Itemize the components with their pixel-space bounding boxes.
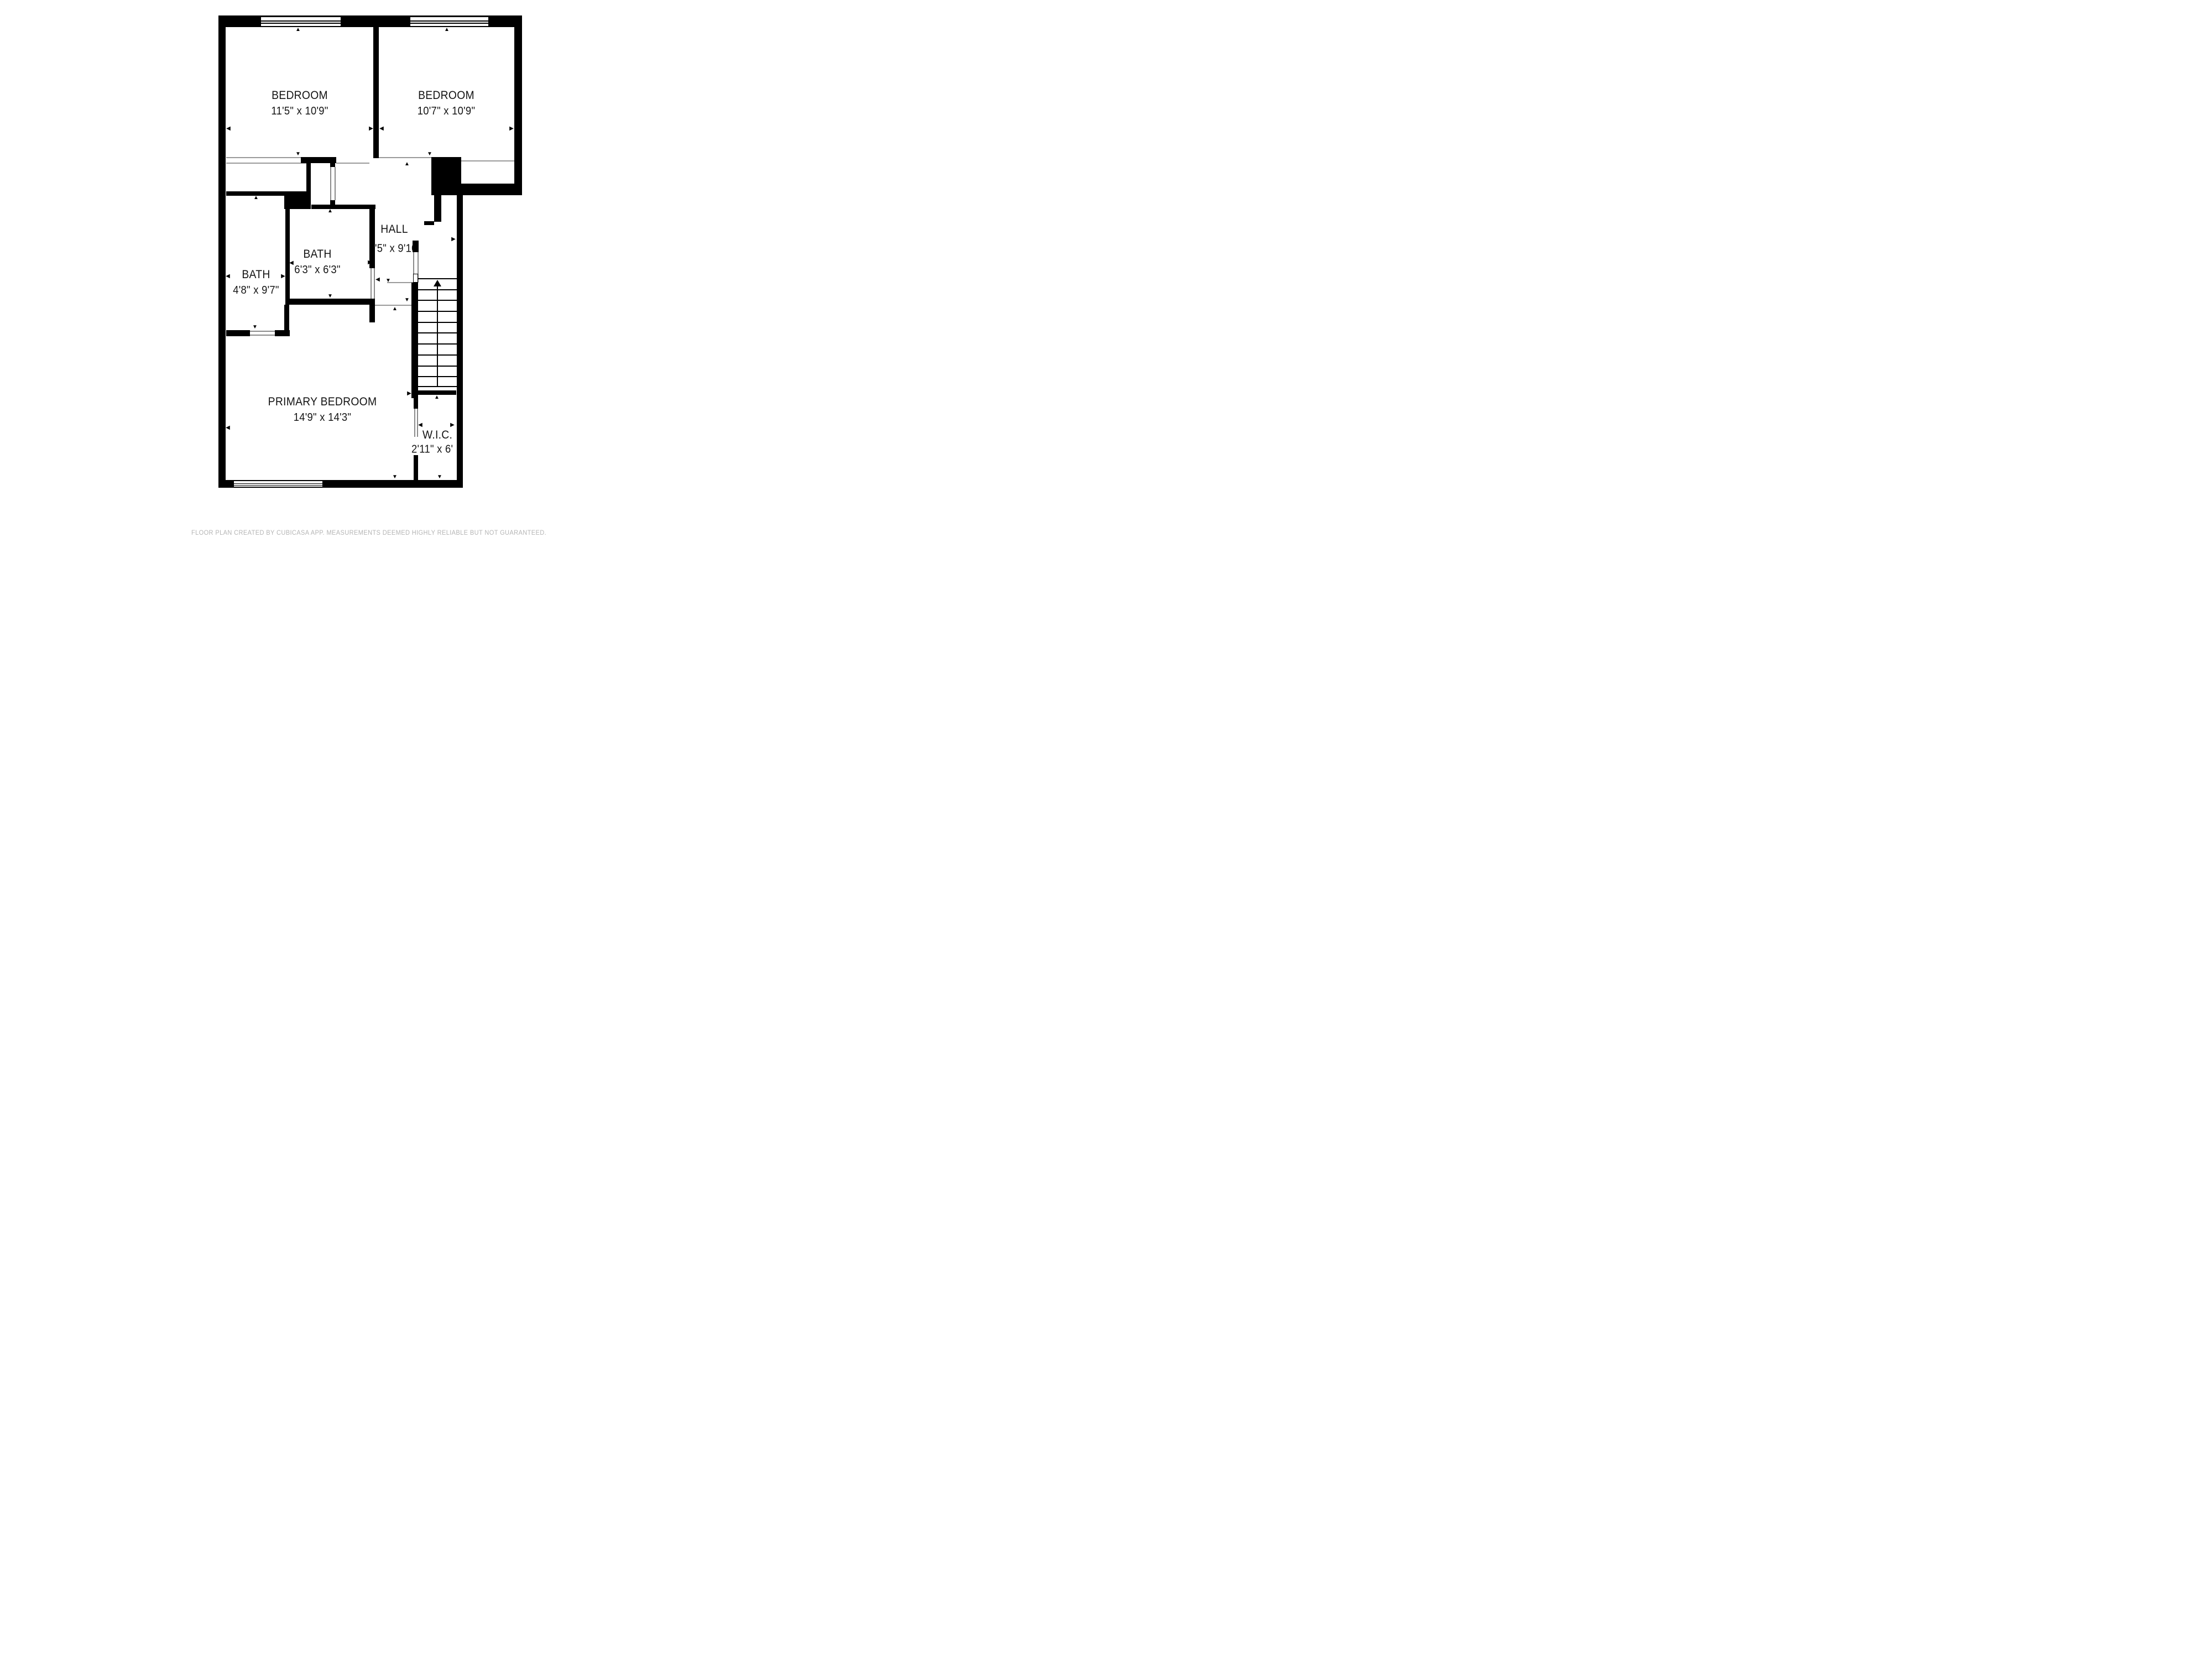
room-label-bedroom-1: BEDROOM 11'5" x 10'9" [271, 89, 328, 118]
extent-arrow-right-icon: ▶ [451, 237, 456, 242]
floor-plan: ▲ ▲ ◀ ▶ ◀ ▶ ▼ ▼ ▲ ◀ ▶ ▼ ◀ ▶ ▲ ▼ ◀ ▶ ▲ ▼ … [0, 0, 737, 553]
extent-arrow-down-icon: ▼ [295, 152, 301, 157]
room-label-wic: W.I.C. [422, 429, 452, 442]
door-opening-line [414, 409, 415, 437]
exterior-wall-step [461, 184, 521, 195]
extent-arrow-left-icon: ◀ [226, 126, 231, 132]
extent-arrow-left-icon: ◀ [379, 126, 384, 132]
extent-arrow-up-icon: ▲ [434, 395, 440, 400]
window-sash-line [409, 20, 490, 22]
room-name: BEDROOM [271, 89, 328, 102]
wall-stair-left [411, 283, 418, 398]
extent-arrow-down-icon: ▼ [385, 278, 391, 284]
window-sash-line [259, 20, 342, 22]
window-sash-line [259, 23, 342, 24]
room-name: BEDROOM [418, 89, 476, 102]
exterior-wall-left [218, 15, 226, 488]
window-sash-line [232, 485, 324, 486]
extent-arrow-down-icon: ▼ [252, 325, 258, 330]
wall-hall-right-stub [413, 241, 419, 252]
room-name: W.I.C. [422, 429, 452, 442]
room-label-bedroom-2: BEDROOM 10'7" x 10'9" [418, 89, 476, 118]
wall-hall-left [369, 209, 375, 268]
wall-bedroom1-bottom [301, 157, 336, 163]
window-bedroom-1 [259, 17, 343, 27]
wall-junction-block [284, 196, 311, 209]
window-end-cap [408, 17, 410, 27]
room-label-bath-center: BATH 6'3" x 6'3" [294, 248, 340, 276]
room-label-bath-left: BATH 4'8" x 9'7" [233, 268, 279, 297]
extent-arrow-down-icon: ▼ [437, 474, 442, 480]
wall-bath-center-top [311, 205, 375, 209]
door-opening-line [335, 167, 336, 200]
window-end-cap [341, 17, 343, 27]
extent-arrow-left-icon: ◀ [226, 274, 230, 279]
extent-arrow-left-icon: ◀ [418, 422, 422, 428]
extent-arrow-right-icon: ▶ [450, 422, 455, 428]
window-end-cap [232, 481, 234, 487]
room-label-hall: HALL [380, 223, 408, 236]
extent-arrow-up-icon: ▲ [327, 208, 333, 214]
open-boundary-line [379, 157, 431, 158]
wall-hall-stair-stub [424, 221, 434, 225]
wall-bath-left-bottom [275, 330, 290, 336]
extent-arrow-up-icon: ▲ [404, 161, 410, 167]
extent-arrow-right-icon: ▶ [281, 274, 285, 279]
window-end-cap [488, 17, 491, 27]
stair-direction-line [437, 283, 438, 386]
extent-arrow-up-icon: ▲ [392, 306, 398, 312]
window-end-cap [322, 481, 325, 487]
wall-between-bedrooms [373, 27, 379, 158]
wall-stair-wic [411, 390, 456, 395]
stair-boundary-line [387, 282, 413, 283]
wall-door-stub [330, 163, 335, 167]
room-dimensions: 10'7" x 10'9" [418, 105, 476, 118]
wall-bath-left-bottom [226, 330, 250, 336]
wall-hall-stair-chunk [434, 190, 441, 222]
room-name: HALL [380, 223, 408, 236]
extent-arrow-right-icon: ▶ [369, 126, 373, 132]
extent-arrow-down-icon: ▼ [427, 152, 432, 157]
window-sash-line [409, 23, 490, 24]
room-dimensions-hall: '5" x 9'10 [375, 243, 418, 255]
extent-arrow-down-icon: ▼ [392, 474, 398, 480]
wall-bath-center-bottom [285, 299, 375, 305]
extent-arrow-left-icon: ◀ [375, 277, 380, 283]
extent-arrow-up-icon: ▲ [295, 27, 301, 33]
open-boundary-line [461, 160, 514, 161]
room-dimensions: 4'8" x 9'7" [233, 284, 279, 297]
wall-hall-left-stub [369, 305, 375, 322]
room-name: PRIMARY BEDROOM [268, 395, 377, 409]
room-dimensions-wic: 2'11" x 6' [411, 444, 453, 456]
wall-wic-left [414, 455, 418, 480]
window-primary-bedroom [232, 481, 325, 487]
extent-arrow-down-icon: ▼ [404, 298, 410, 303]
extent-arrow-right-icon: ▶ [407, 391, 411, 397]
exterior-wall-right-lower [457, 190, 463, 488]
open-boundary-line [226, 163, 307, 164]
footer-disclaimer: FLOOR PLAN CREATED BY CUBICASA APP. MEAS… [191, 530, 546, 536]
open-boundary-line [336, 163, 369, 164]
room-dimensions: 14'9" x 14'3" [268, 411, 377, 424]
window-end-cap [259, 17, 261, 27]
extent-arrow-up-icon: ▲ [253, 195, 259, 201]
room-name: BATH [233, 268, 279, 281]
open-boundary-line [226, 157, 301, 158]
stair-tread [418, 278, 457, 279]
extent-arrow-right-icon: ▶ [509, 126, 514, 132]
staircase [418, 278, 457, 387]
exterior-wall-right-upper [514, 15, 522, 195]
wall-wic-left [414, 394, 418, 409]
room-dimensions: 11'5" x 10'9" [271, 105, 328, 118]
door-opening-line [250, 331, 275, 332]
stair-newel-post [413, 274, 418, 283]
stairs-up-arrow-icon [434, 280, 441, 286]
wall-bath-center-left-upper [306, 163, 311, 196]
wall-bath-left-top [226, 191, 307, 196]
door-opening-line [250, 335, 275, 336]
stair-tread [418, 386, 457, 387]
window-bedroom-2 [408, 17, 491, 27]
extent-arrow-left-icon: ◀ [289, 260, 294, 266]
room-name: BATH [294, 248, 340, 261]
wall-door-stub [330, 200, 335, 205]
window-sash-line [232, 483, 324, 484]
room-label-primary-bedroom: PRIMARY BEDROOM 14'9" x 14'3" [268, 395, 377, 424]
door-opening-line [330, 167, 331, 200]
extent-arrow-up-icon: ▲ [444, 27, 450, 33]
extent-arrow-left-icon: ◀ [226, 425, 230, 431]
room-dimensions: 6'3" x 6'3" [294, 264, 340, 276]
wall-between-baths [285, 209, 290, 299]
